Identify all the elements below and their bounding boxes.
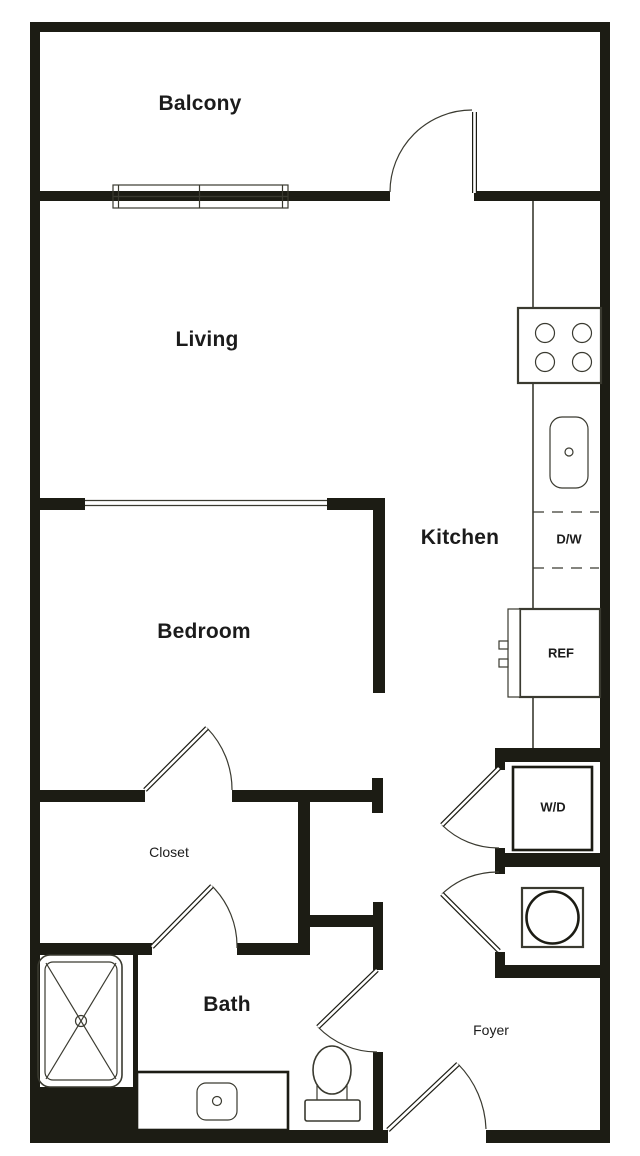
floor-plan: Balcony Living Kitchen Bedroom Closet Ba… — [0, 0, 640, 1156]
wall-top — [30, 22, 610, 32]
closet-walls — [38, 778, 383, 955]
room-label-balcony: Balcony — [158, 92, 241, 116]
stove — [518, 308, 601, 383]
bedroom-divider-wall — [38, 498, 385, 693]
water-heater — [522, 888, 583, 947]
vanity — [137, 1072, 288, 1130]
bedroom-right-wall — [373, 498, 385, 693]
room-label-living: Living — [175, 328, 238, 352]
kitchen-sink — [550, 417, 588, 488]
wall-bottom-right-segment — [486, 1130, 610, 1143]
water-heater-closet-door — [442, 872, 499, 951]
shower-platform — [30, 1087, 137, 1143]
balcony-window — [113, 185, 288, 208]
balcony-door — [390, 110, 475, 193]
appliance-label-refrigerator: REF — [548, 646, 574, 661]
toilet-nook-wall — [310, 915, 380, 927]
laundry-closet-door — [442, 768, 499, 848]
entry-door — [388, 1064, 486, 1130]
bath-door — [318, 970, 377, 1052]
bedroom-door — [145, 728, 232, 790]
closet-door — [152, 886, 237, 948]
room-label-foyer: Foyer — [473, 1022, 509, 1038]
floor-plan-drawing — [0, 0, 640, 1156]
room-label-bath: Bath — [203, 993, 250, 1017]
appliance-label-dishwasher: D/W — [556, 532, 581, 547]
shower — [30, 955, 138, 1143]
bedroom-glass-track — [85, 501, 327, 506]
room-label-bedroom: Bedroom — [157, 620, 251, 644]
appliance-label-washer-dryer: W/D — [540, 800, 565, 815]
room-label-closet: Closet — [149, 844, 189, 860]
room-label-kitchen: Kitchen — [421, 526, 499, 550]
toilet — [305, 1046, 360, 1121]
foyer-left-wall — [373, 902, 383, 1143]
